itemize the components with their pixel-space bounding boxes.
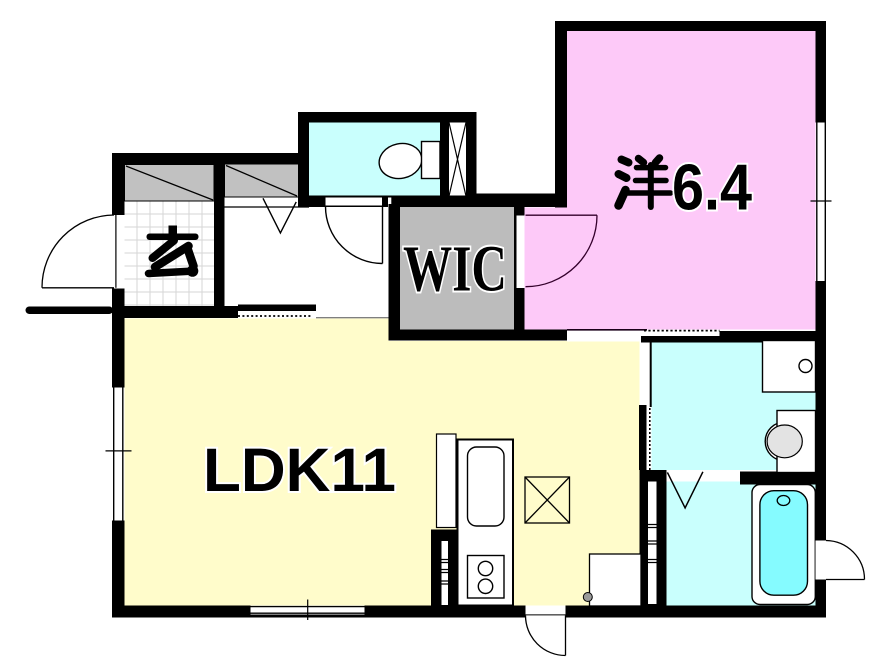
- svg-text:WIC: WIC: [403, 233, 507, 306]
- svg-text:6.4: 6.4: [672, 151, 752, 224]
- svg-text:LDK11: LDK11: [203, 436, 396, 504]
